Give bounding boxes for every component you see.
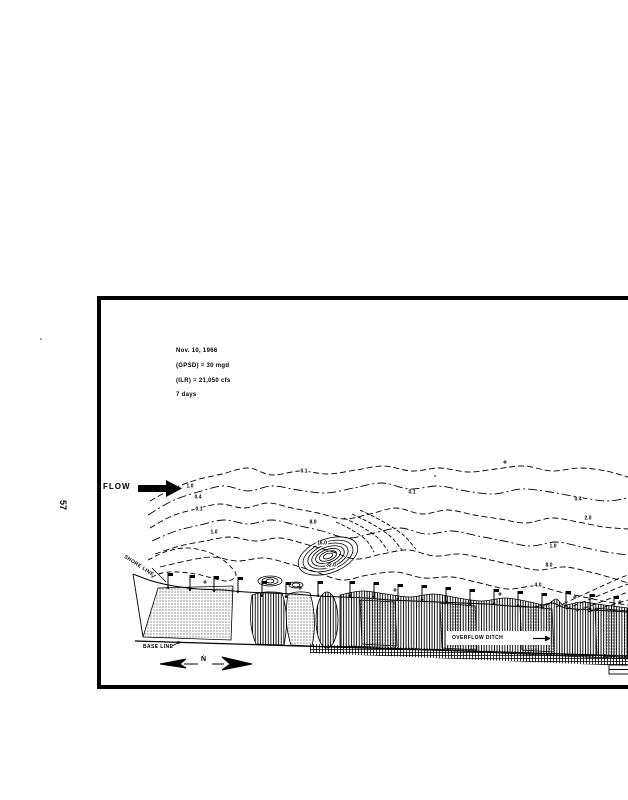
overflow-ditch-label: OVERFLOW DITCH (452, 635, 503, 641)
annotation-ilr: (ILR) = 21,050 cfs (176, 378, 231, 384)
contour-label: 32.0 (325, 563, 337, 568)
contour-label: 8.0 (309, 520, 318, 525)
contour-label: 0.1 (195, 507, 204, 512)
contour-label: 1.0 (549, 544, 558, 549)
plus-mark-icon (203, 580, 207, 584)
contour-label: 0.4 (194, 495, 203, 500)
station-flag-icon (167, 573, 173, 589)
contour-label: 4.0 (534, 583, 543, 588)
scanned-report-page: 57 Nov. 10, 1966 (GPSD) = 30 mgd (ILR) =… (0, 0, 628, 800)
contour-label: 0.1 (408, 490, 417, 495)
base-line-label: BASE LINE (143, 644, 173, 650)
annotation-days: 7 days (176, 392, 196, 398)
annotation-date: Nov. 10, 1966 (176, 348, 217, 354)
survey-station-markers (167, 460, 622, 612)
north-letter: Ṅ (201, 656, 206, 663)
scale-bar (609, 665, 628, 674)
spoil-banks (143, 586, 628, 666)
contour-map-figure (0, 0, 628, 800)
annotation-gpsd: (GPSD) = 30 mgd (176, 363, 229, 369)
flow-label: FLOW (103, 482, 131, 491)
plus-mark-icon (503, 460, 507, 464)
flow-arrow-icon (138, 480, 182, 497)
scale-zero-label: 0 (603, 654, 606, 660)
contour-label: 1.0 (210, 530, 219, 535)
contour-label: 0.1 (300, 469, 309, 474)
contour-label: 1.0 (186, 484, 195, 489)
contour-label: 16.0 (316, 541, 328, 546)
station-flag-icon (237, 577, 243, 593)
plus-mark-icon (498, 592, 502, 596)
contour-label: 8.0 (545, 563, 554, 568)
page-number: 57 (58, 500, 68, 510)
contour-label: 2.0 (584, 516, 593, 521)
contour-label: 0.4 (574, 497, 583, 502)
plus-mark-icon (393, 588, 397, 592)
